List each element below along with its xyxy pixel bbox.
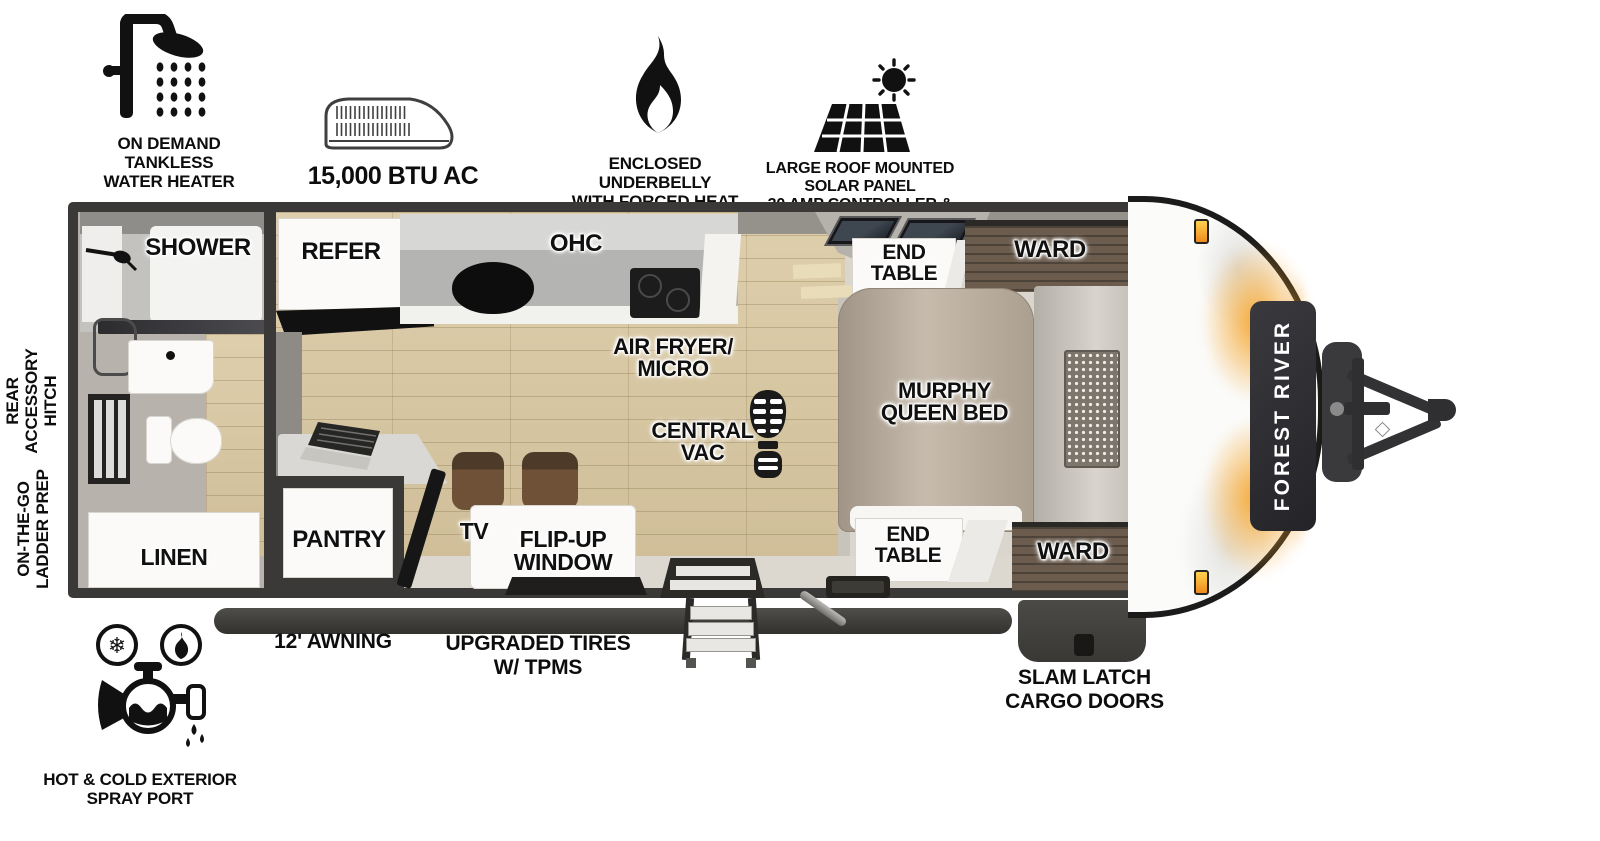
- feature-cargo-label: SLAM LATCH CARGO DOORS: [992, 666, 1177, 713]
- feature-ac: 15,000 BTU AC: [308, 86, 478, 196]
- feature-water-heater: ON DEMAND TANKLESS WATER HEATER: [84, 12, 254, 202]
- pantry-label: PANTRY: [284, 528, 394, 552]
- air-fryer-label: AIR FRYER/ MICRO: [598, 336, 748, 381]
- ac-unit-icon: [316, 86, 468, 158]
- wardrobe-bottom-label: WARD: [1018, 540, 1128, 564]
- toilet-bowl: [170, 418, 222, 464]
- refer-label: REFER: [282, 240, 400, 264]
- forest-river-logo-text: FOREST RIVER: [1271, 320, 1295, 511]
- feature-water-heater-label: ON DEMAND TANKLESS WATER HEATER: [84, 134, 254, 191]
- counter-end-panel: [699, 234, 741, 322]
- feature-ac-label: 15,000 BTU AC: [298, 162, 488, 190]
- safety-chain-link: [1375, 422, 1391, 438]
- central-vac-label: CENTRAL VAC: [645, 420, 760, 465]
- spray-port-icon: ❄: [80, 620, 228, 768]
- sink-drain: [166, 351, 175, 360]
- feature-rear-hitch-label: REAR ACCESSORY HITCH: [3, 331, 61, 471]
- cargo-door: [1018, 600, 1146, 662]
- forest-river-badge: FOREST RIVER: [1250, 301, 1316, 531]
- floor-plank-highlight: [793, 263, 841, 279]
- floor-plank-highlight: [801, 285, 853, 299]
- end-table-bottom-label: END TABLE: [862, 524, 954, 567]
- entry-door-opening: [660, 558, 765, 598]
- stool: [452, 452, 504, 510]
- ohc-label: OHC: [536, 232, 616, 256]
- toilet-tank: [146, 416, 172, 464]
- bathroom-window: [88, 394, 130, 484]
- feature-spray-port-label: HOT & COLD EXTERIOR SPRAY PORT: [40, 770, 240, 808]
- shower-label: SHOWER: [128, 236, 268, 260]
- marker-light: [1194, 219, 1209, 244]
- tv-label: TV: [452, 520, 496, 543]
- cooktop: [630, 268, 700, 318]
- underfloor-vent: [826, 576, 890, 598]
- laptop-icon: [300, 420, 398, 476]
- boot-print-icon: [745, 388, 791, 480]
- end-table-top-label: END TABLE: [858, 242, 950, 285]
- front-cap: FOREST RIVER: [1128, 196, 1324, 618]
- murphy-bed-vent-grille: [1064, 350, 1120, 468]
- entry-step-inner: [670, 580, 756, 590]
- linen-label: LINEN: [120, 546, 228, 569]
- hitch-coupler: [1428, 399, 1456, 421]
- hitch-jack-handle: [1344, 402, 1390, 415]
- shower-head-icon: [98, 14, 230, 134]
- bathroom-sink: [128, 340, 214, 394]
- murphy-bed-label: MURPHY QUEEN BED: [862, 380, 1027, 425]
- flame-icon: [618, 34, 698, 148]
- feature-solar: LARGE ROOF MOUNTED SOLAR PANEL 30 AMP CO…: [742, 56, 978, 206]
- stool: [522, 452, 578, 510]
- rv-floorplan-diagram: ON DEMAND TANKLESS WATER HEATER 15,000 B…: [0, 0, 1600, 841]
- feature-ladder-prep-label: ON-THE-GO LADDER PREP: [14, 456, 58, 602]
- entry-step-inner: [676, 566, 750, 576]
- flip-up-window-sill: [505, 577, 647, 595]
- marker-light: [1194, 570, 1209, 595]
- svg-text:❄: ❄: [108, 633, 126, 658]
- wardrobe-top-label: WARD: [990, 238, 1110, 262]
- entry-steps: [680, 596, 762, 670]
- solar-panel-icon: [800, 58, 922, 164]
- feature-awning-label: 12' AWNING: [248, 630, 418, 654]
- feature-tires-label: UPGRADED TIRES W/ TPMS: [438, 632, 638, 679]
- kitchen-sink: [452, 262, 534, 314]
- feature-underbelly: ENCLOSED UNDERBELLY WITH FORCED HEAT: [560, 34, 750, 204]
- cargo-door-latch: [1074, 634, 1094, 656]
- flip-up-window-label: FLIP-UP WINDOW: [496, 528, 630, 575]
